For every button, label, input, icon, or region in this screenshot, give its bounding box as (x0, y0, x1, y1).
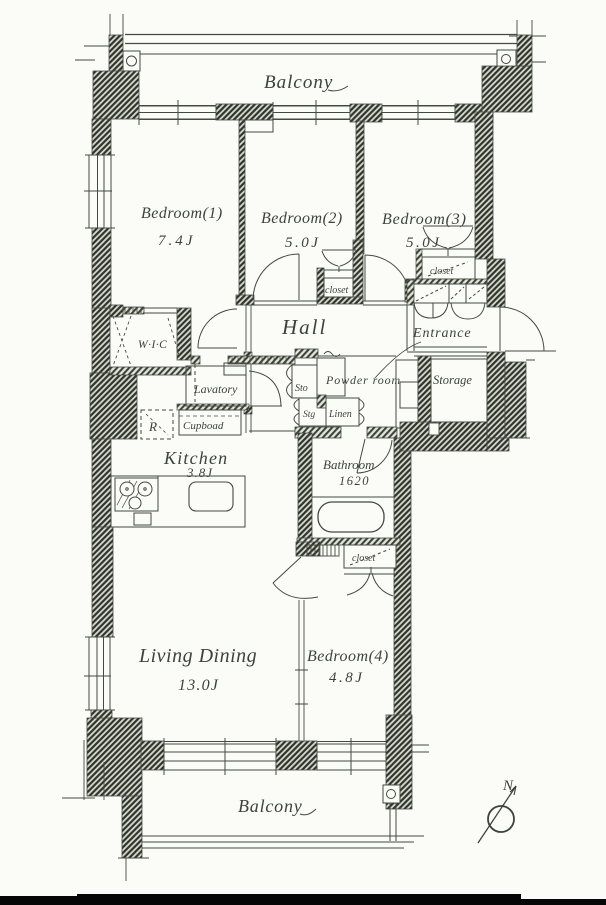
svg-text:Lavatory: Lavatory (193, 382, 238, 396)
svg-text:5.0J: 5.0J (285, 235, 320, 251)
svg-text:Powder room: Powder room (325, 373, 401, 387)
svg-text:closet: closet (352, 553, 376, 564)
svg-text:Bedroom(4): Bedroom(4) (307, 648, 389, 665)
svg-text:R: R (148, 419, 157, 434)
svg-text:Bathroom: Bathroom (323, 457, 375, 472)
svg-text:7.4J: 7.4J (158, 233, 195, 249)
svg-text:Cupboad: Cupboad (183, 420, 224, 432)
svg-text:W·I·C: W·I·C (138, 339, 167, 351)
svg-text:Entrance: Entrance (412, 326, 472, 341)
svg-text:Bedroom(2): Bedroom(2) (261, 210, 343, 227)
svg-text:Stg: Stg (303, 410, 315, 420)
svg-text:Linen: Linen (328, 409, 352, 420)
svg-text:4.8J: 4.8J (329, 670, 364, 686)
svg-text:1620: 1620 (339, 474, 370, 488)
svg-text:closet: closet (325, 285, 349, 296)
svg-text:3.8J: 3.8J (186, 465, 213, 480)
svg-text:Sto: Sto (295, 383, 308, 394)
svg-text:Storage: Storage (433, 373, 472, 387)
svg-text:13.0J: 13.0J (178, 677, 219, 694)
svg-text:Balcony: Balcony (238, 796, 303, 816)
svg-text:N: N (502, 778, 514, 794)
svg-text:closet: closet (430, 266, 454, 277)
svg-text:Living Dining: Living Dining (138, 645, 257, 667)
svg-text:Hall: Hall (281, 315, 327, 339)
svg-text:Bedroom(1): Bedroom(1) (141, 205, 223, 222)
svg-text:Balcony: Balcony (264, 72, 333, 93)
svg-text:Bedroom(3): Bedroom(3) (382, 211, 467, 228)
